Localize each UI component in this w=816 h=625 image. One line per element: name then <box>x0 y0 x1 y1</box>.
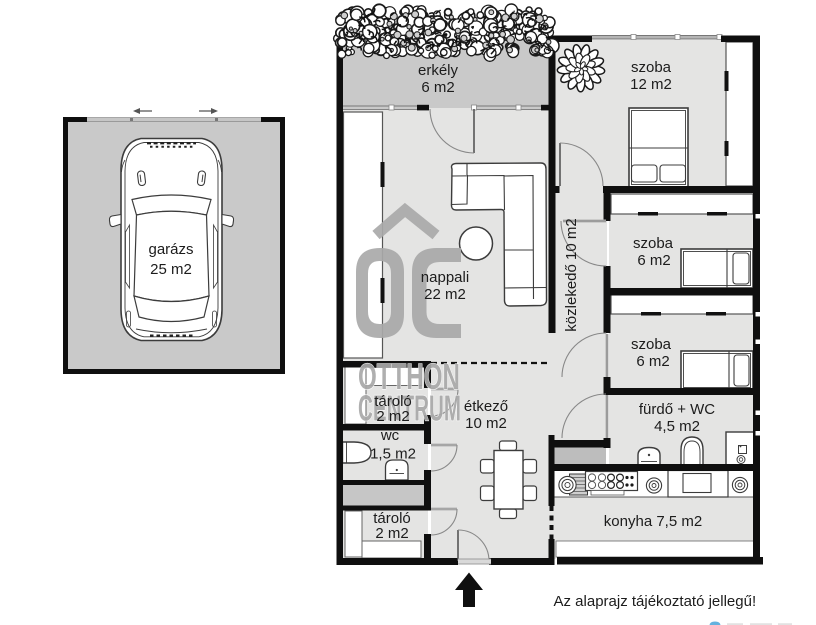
svg-text:szoba: szoba <box>631 336 672 353</box>
svg-text:2 m2: 2 m2 <box>375 525 408 542</box>
svg-text:2 m2: 2 m2 <box>376 408 409 425</box>
svg-text:konyha 7,5 m2: konyha 7,5 m2 <box>604 513 702 530</box>
svg-text:4,5 m2: 4,5 m2 <box>654 418 700 435</box>
svg-text:fürdő + WC: fürdő + WC <box>639 401 715 418</box>
svg-text:étkező: étkező <box>464 398 508 415</box>
svg-text:szoba: szoba <box>631 59 672 76</box>
svg-text:6 m2: 6 m2 <box>421 79 454 96</box>
svg-text:közlekedő 10 m2: közlekedő 10 m2 <box>563 218 580 331</box>
svg-text:1,5 m2: 1,5 m2 <box>370 446 416 463</box>
svg-text:garázs: garázs <box>148 241 193 258</box>
svg-text:25 m2: 25 m2 <box>150 261 192 278</box>
svg-text:erkély: erkély <box>418 62 459 79</box>
svg-text:szoba: szoba <box>633 235 674 252</box>
svg-text:nappali: nappali <box>421 269 469 286</box>
svg-text:6 m2: 6 m2 <box>637 252 670 269</box>
svg-text:6 m2: 6 m2 <box>636 353 669 370</box>
svg-text:wc: wc <box>380 427 400 444</box>
svg-text:10 m2: 10 m2 <box>465 415 507 432</box>
svg-text:22 m2: 22 m2 <box>424 286 466 303</box>
svg-text:Az alaprajz tájékoztató jelleg: Az alaprajz tájékoztató jellegű! <box>554 593 757 610</box>
svg-text:12 m2: 12 m2 <box>630 76 672 93</box>
